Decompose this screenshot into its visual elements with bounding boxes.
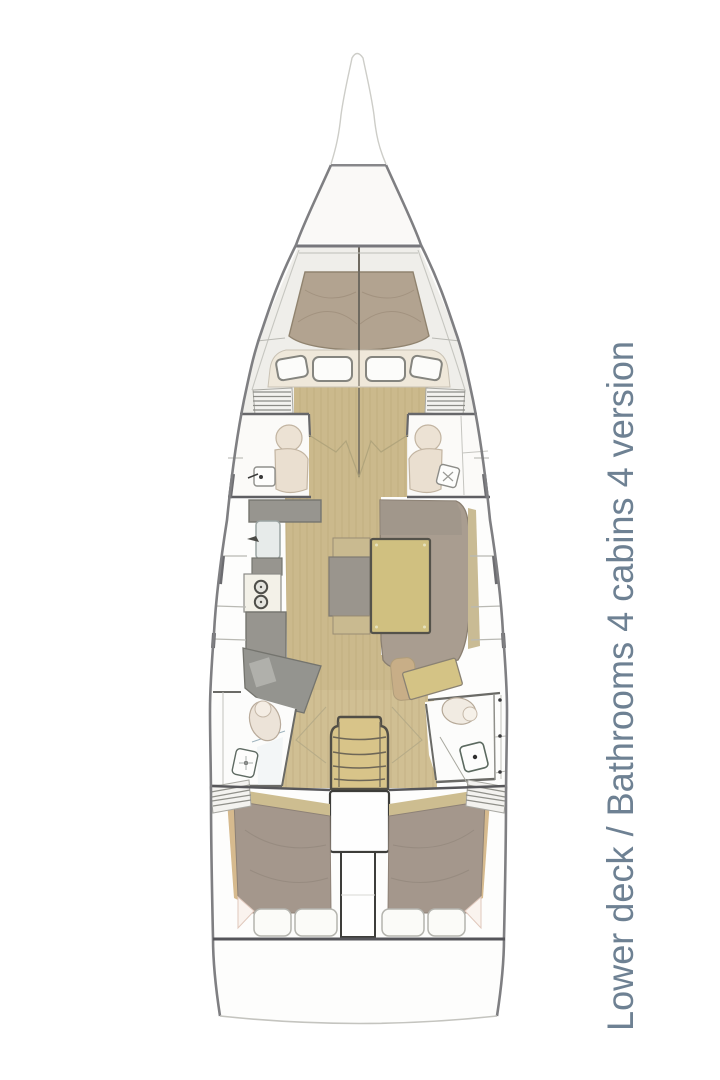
svg-text:Lower deck / Bathrooms 4 cabin: Lower deck / Bathrooms 4 cabins 4 versio… [600, 341, 641, 1031]
